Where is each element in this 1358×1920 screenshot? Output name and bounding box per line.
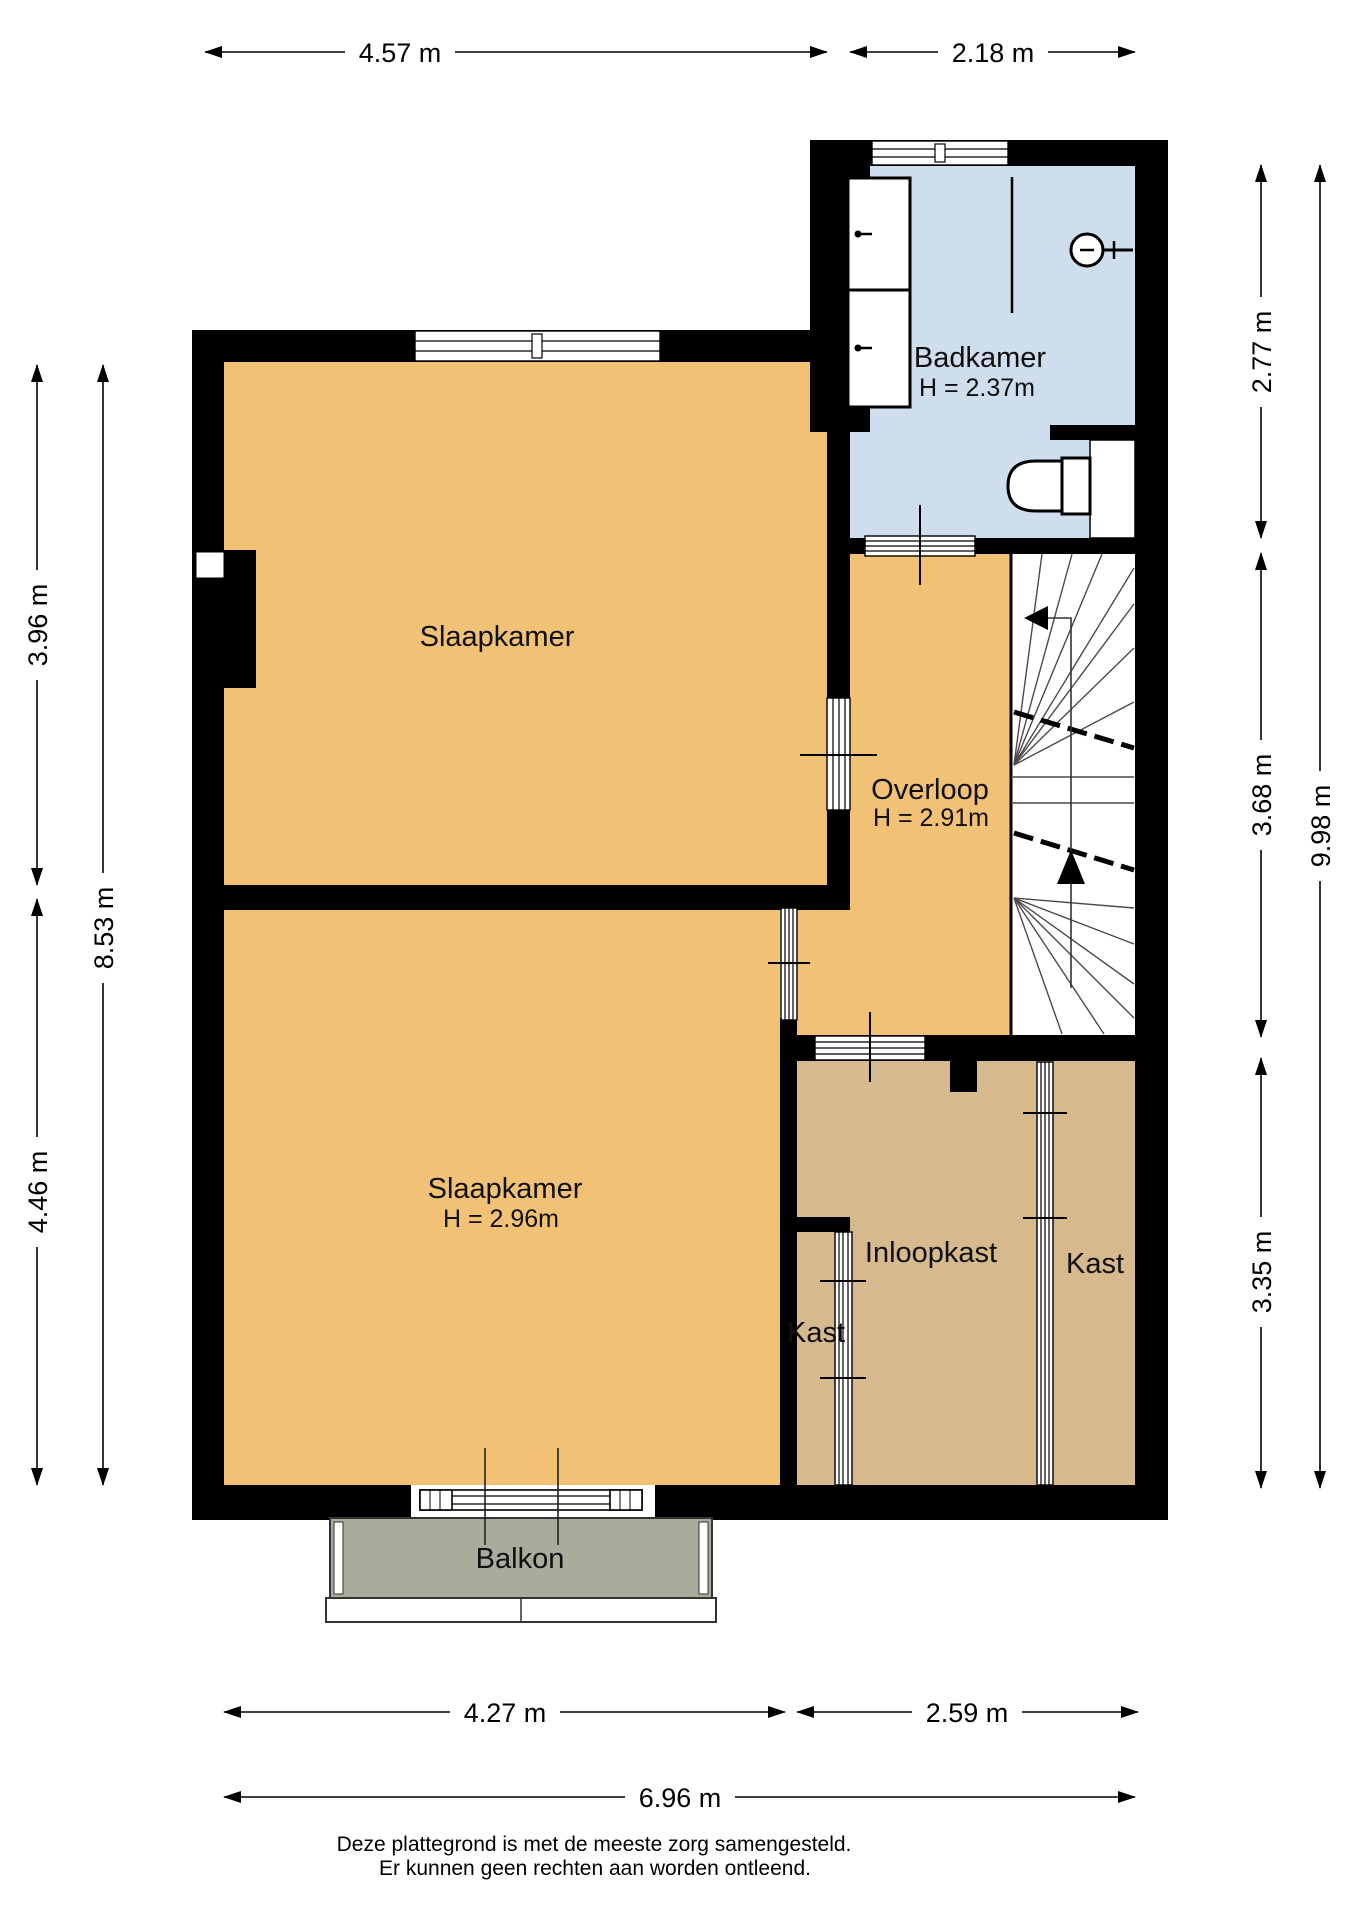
label-inloopkast: Inloopkast xyxy=(865,1237,997,1269)
svg-text:3.35 m: 3.35 m xyxy=(1247,1231,1277,1314)
svg-text:2.59 m: 2.59 m xyxy=(926,1698,1009,1728)
wall-bathroom-left-lower xyxy=(827,430,850,910)
wall-kast-stub xyxy=(797,1217,850,1232)
floorplan-page: Badkamer H = 2.37m Overloop H = 2.91m Sl… xyxy=(0,0,1358,1920)
svg-text:4.27 m: 4.27 m xyxy=(464,1698,547,1728)
svg-text:4.46 m: 4.46 m xyxy=(23,1151,53,1234)
label-slaapkamer-onder-height: H = 2.96m xyxy=(443,1205,559,1233)
label-balkon: Balkon xyxy=(476,1543,565,1575)
footer-line-1: Deze plattegrond is met de meeste zorg s… xyxy=(337,1833,852,1856)
footer-disclaimer: Deze plattegrond is met de meeste zorg s… xyxy=(337,1833,852,1880)
svg-text:9.98 m: 9.98 m xyxy=(1306,785,1336,868)
balcony-edge-right xyxy=(699,1522,708,1594)
svg-text:8.53 m: 8.53 m xyxy=(89,887,119,970)
floorplan-drawing: Badkamer H = 2.37m Overloop H = 2.91m Sl… xyxy=(0,0,1358,1920)
chimney-notch xyxy=(196,552,224,578)
svg-text:4.57 m: 4.57 m xyxy=(359,38,442,68)
wall-lower-bedroom-right xyxy=(780,1018,797,1490)
label-overloop-height: H = 2.91m xyxy=(873,804,989,832)
svg-text:3.96 m: 3.96 m xyxy=(23,584,53,667)
wall-post xyxy=(950,1060,977,1092)
svg-text:3.68 m: 3.68 m xyxy=(1247,754,1277,837)
wall-bedroom-divider xyxy=(192,885,850,910)
label-kast-rechts: Kast xyxy=(1066,1248,1124,1280)
label-slaapkamer-boven: Slaapkamer xyxy=(420,621,575,653)
window-bedroom-top xyxy=(415,331,660,361)
wall-toilet-stub xyxy=(1050,425,1135,440)
svg-text:2.77 m: 2.77 m xyxy=(1247,311,1277,394)
window-bathroom-top xyxy=(872,141,1008,165)
label-overloop: Overloop xyxy=(871,774,989,806)
duct-niche xyxy=(1090,440,1135,538)
label-badkamer: Badkamer xyxy=(914,342,1047,374)
footer-line-2: Er kunnen geen rechten aan worden ontlee… xyxy=(379,1857,811,1880)
wall-bottom xyxy=(192,1485,1168,1520)
balcony-door xyxy=(420,1490,642,1510)
wall-right xyxy=(1135,140,1168,1520)
svg-text:2.18 m: 2.18 m xyxy=(952,38,1035,68)
label-badkamer-height: H = 2.37m xyxy=(919,374,1035,402)
balcony-edge-left xyxy=(334,1522,343,1594)
toilet-icon xyxy=(1008,458,1090,514)
wall-left xyxy=(192,330,224,1520)
wall-chimney-breast xyxy=(224,550,256,688)
label-kast-klein: Kast xyxy=(787,1317,845,1349)
stairs xyxy=(1010,554,1135,1035)
svg-text:6.96 m: 6.96 m xyxy=(639,1783,722,1813)
bathroom-cabinets xyxy=(848,178,910,407)
label-slaapkamer-onder: Slaapkamer xyxy=(428,1173,583,1205)
